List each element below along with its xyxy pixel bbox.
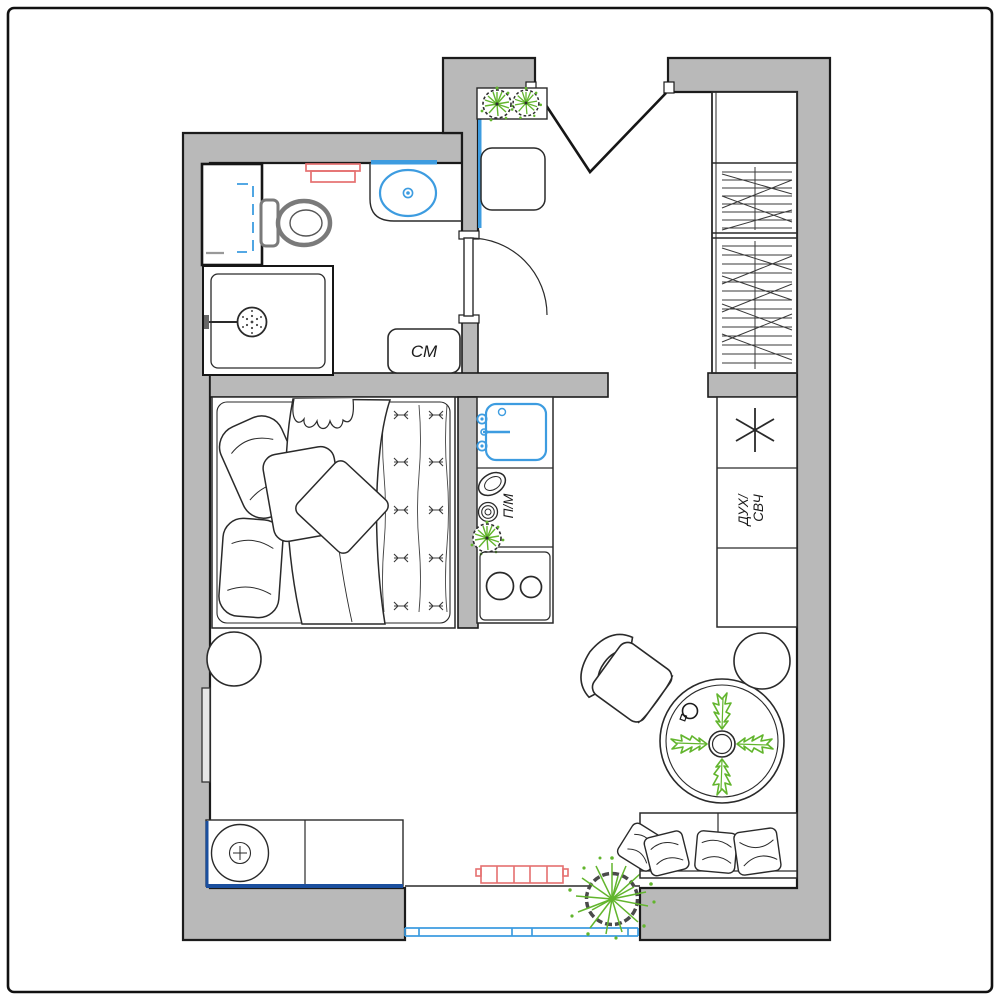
sofa-pillow [733, 827, 782, 876]
oven-label-line1: ДУХ/ [736, 493, 751, 527]
sofa-pillow [694, 830, 737, 873]
laundry-unit [202, 164, 262, 265]
side-chair [734, 633, 790, 689]
oven-microwave-label: ДУХ/ СВЧ [736, 491, 766, 528]
wardrobe [712, 92, 797, 373]
kitchen-sink [477, 404, 546, 460]
entry-hall [477, 87, 547, 229]
hall-bench [481, 148, 545, 210]
mirror [371, 160, 437, 165]
sofa-pillow [643, 830, 690, 877]
wall-bedroom-divider [458, 397, 478, 628]
oven-label-line2: СВЧ [751, 493, 766, 521]
wall-middle [210, 373, 608, 397]
dining-table [660, 679, 784, 803]
bed [212, 397, 455, 628]
window-sofa [615, 813, 797, 878]
pouf [207, 632, 261, 686]
wall-bath-door-stub [462, 317, 478, 375]
wall-wardrobe-bottom [708, 373, 797, 397]
floor-plan-page: СМ [0, 0, 1000, 1000]
floor-plan-drawing: СМ [0, 0, 1000, 1000]
washing-machine-label: СМ [411, 342, 438, 361]
dishwasher-label: П/М [501, 493, 516, 519]
wall-tv [202, 688, 210, 782]
toilet [261, 200, 330, 246]
media-console [206, 820, 403, 886]
shower [203, 266, 333, 375]
washing-machine: СМ [388, 329, 460, 373]
